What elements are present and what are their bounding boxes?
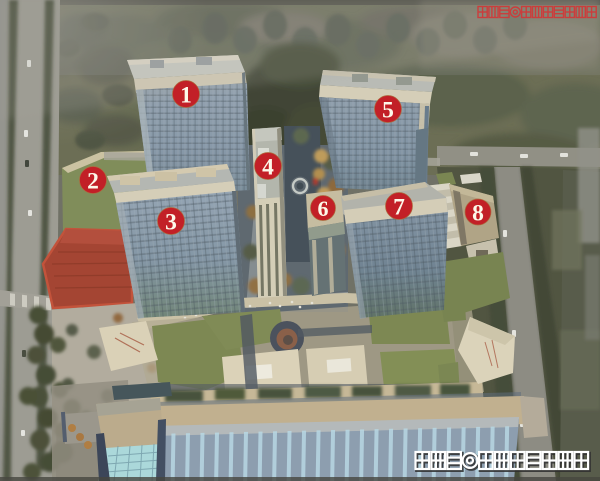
svg-text:8: 8 — [472, 201, 484, 227]
svg-text:5: 5 — [382, 98, 394, 124]
svg-text:7: 7 — [393, 195, 405, 221]
svg-text:6: 6 — [318, 196, 329, 221]
svg-text:2: 2 — [87, 169, 99, 195]
svg-text:3: 3 — [165, 210, 177, 236]
svg-text:1: 1 — [180, 83, 192, 109]
svg-text:4: 4 — [262, 155, 274, 181]
